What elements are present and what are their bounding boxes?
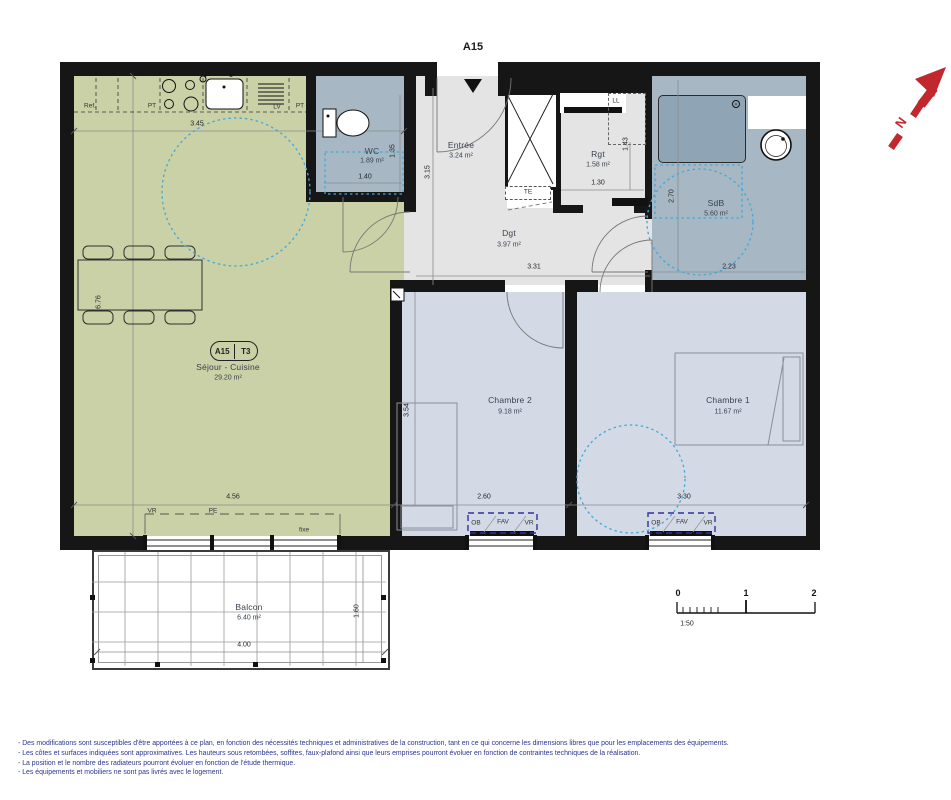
- footer-note-line: - La position et le nombre des radiateur…: [18, 759, 729, 769]
- footer-notes: - Des modifications sont susceptibles d'…: [18, 739, 729, 778]
- room-area-balcon: 6.40 m²: [237, 615, 261, 622]
- room-area-entree: 3.24 m²: [449, 153, 473, 160]
- dim-rgt-height: 1.43: [623, 137, 630, 151]
- room-label-dgt: Dgt: [502, 228, 516, 238]
- label-vr-chambre1: VR: [703, 520, 712, 527]
- label-fixe-sejour: fixe: [299, 527, 309, 534]
- floor-plan: A15 T3 A15 Séjour - Cuisine 29.20 m² WC …: [0, 0, 951, 800]
- room-area-sejour: 29.20 m²: [214, 375, 242, 382]
- label-electrical-panel: TE: [524, 189, 532, 196]
- north-arrow-icon: [891, 67, 946, 148]
- dim-sdb-height: 2.70: [669, 189, 676, 203]
- badge-unit: A15: [211, 344, 235, 359]
- sejour-window-dashline: [145, 514, 340, 534]
- room-label-sejour: Séjour - Cuisine: [196, 362, 260, 372]
- room-area-dgt: 3.97 m²: [497, 242, 521, 249]
- door-swings: [343, 78, 652, 348]
- label-washing-machine: LL: [612, 98, 619, 105]
- dining-table-set: [78, 246, 202, 324]
- room-label-entree: Entrée: [448, 140, 474, 150]
- unit-marker-label: A15: [463, 41, 483, 53]
- label-vr-chambre2: VR: [524, 520, 533, 527]
- label-ob-chambre2: OB: [471, 520, 480, 527]
- window-opening-slashes: [484, 516, 705, 532]
- dim-chambre1-width: 3.30: [677, 494, 691, 501]
- footer-note-line: - Les côtes et surfaces indiquées sont a…: [18, 749, 729, 759]
- label-pe-sejour: PE: [209, 508, 218, 515]
- dimension-lines: [74, 76, 806, 662]
- dim-kitchen-width: 3.45: [190, 121, 204, 128]
- room-area-wc: 1.89 m²: [360, 158, 384, 165]
- badge-type: T3: [235, 344, 258, 359]
- toilet: [323, 109, 369, 137]
- dim-chambre2-width: 2.60: [477, 494, 491, 501]
- plan-linework: [0, 0, 951, 800]
- unit-type-badge: A15 T3: [210, 341, 258, 361]
- kitchen-appliances: [163, 71, 285, 111]
- label-pt-left: PT: [148, 103, 156, 110]
- room-label-chambre1: Chambre 1: [706, 395, 750, 405]
- room-area-chambre1: 11.67 m²: [714, 409, 741, 416]
- dim-wc-height: 1.35: [390, 144, 397, 158]
- dim-rgt-width: 1.30: [591, 180, 605, 187]
- room-label-balcon: Balcon: [235, 602, 262, 612]
- entrance-marker-triangle: [464, 79, 482, 93]
- scale-tick-1: 1: [743, 588, 748, 598]
- dimension-ticks: [71, 73, 809, 655]
- scale-tick-2: 2: [811, 588, 816, 598]
- scale-tick-0: 0: [675, 588, 680, 598]
- shower-drain: [733, 101, 740, 108]
- scale-ratio: 1:50: [680, 621, 694, 628]
- window-glazing: [145, 540, 715, 546]
- room-label-sdb: SdB: [708, 198, 725, 208]
- label-pt-right: PT: [296, 103, 304, 110]
- room-area-sdb: 5.60 m²: [704, 211, 728, 218]
- label-fav-chambre1: FAV: [676, 519, 688, 526]
- room-label-chambre2: Chambre 2: [488, 395, 532, 405]
- footer-note-line: - Des modifications sont susceptibles d'…: [18, 739, 729, 749]
- dim-entree-height: 3.15: [425, 165, 432, 179]
- room-area-chambre2: 9.18 m²: [498, 409, 522, 416]
- washbasin: [761, 130, 791, 160]
- label-fridge: Ref.: [84, 103, 96, 110]
- footer-note-line: - Les équipements et mobiliers ne sont p…: [18, 768, 729, 778]
- dim-sejour-width: 4.56: [226, 494, 240, 501]
- room-label-wc: WC: [365, 146, 380, 156]
- label-ob-chambre1: OB: [651, 520, 660, 527]
- label-fav-chambre2: FAV: [497, 519, 509, 526]
- closet-x-brace: [507, 94, 553, 184]
- room-area-rgt: 1.58 m²: [586, 162, 610, 169]
- dim-balcon-width: 4.00: [237, 642, 251, 649]
- label-dishwasher: LV: [273, 104, 280, 111]
- dim-wc-width: 1.40: [358, 174, 372, 181]
- scale-bar: [677, 600, 815, 613]
- kitchen-counter-lines: [74, 78, 306, 112]
- dim-sdb-width: 2.23: [722, 264, 736, 271]
- room-label-rgt: Rgt: [591, 149, 605, 159]
- dim-chambre2-height: 3.54: [404, 403, 411, 417]
- window-frame-ticks: [143, 535, 715, 550]
- dim-sejour-height: 6.76: [96, 295, 103, 309]
- label-vr-sejour: VR: [147, 508, 156, 515]
- dim-dgt-width: 3.31: [527, 264, 541, 271]
- dim-balcon-height: 1.60: [354, 604, 361, 618]
